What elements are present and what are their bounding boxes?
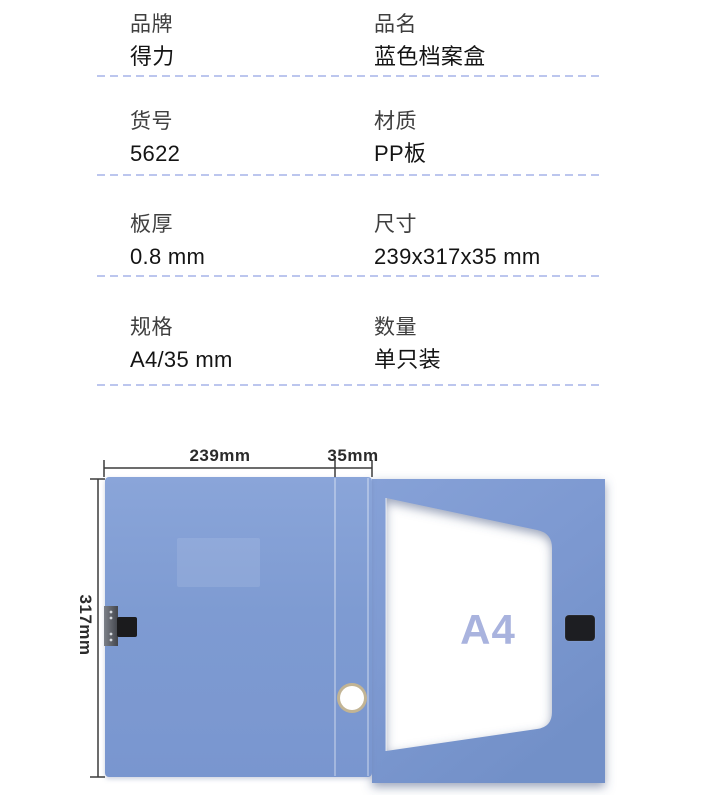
product-dimension-diagram: A4 239mm 35mm 317mm [0,430,726,795]
product-name-label: 品名 [374,12,486,38]
clip-screw [110,633,113,636]
product-name-value: 蓝色档案盒 [374,43,486,71]
spec-cell-spec: 规格 A4/35 mm [130,315,233,374]
material-value: PP板 [374,140,426,168]
item-no-label: 货号 [130,109,180,135]
finger-hole [340,686,364,710]
thickness-value: 0.8 mm [130,243,205,271]
quantity-value: 单只装 [374,346,441,374]
size-label: 尺寸 [374,212,541,238]
clip-fastener-left [117,617,137,637]
clip-screw [110,611,113,614]
size-value: 239x317x35 mm [374,243,541,271]
spec-cell-size: 尺寸 239x317x35 mm [374,212,541,271]
divider-dashed [97,384,603,386]
divider-dashed [97,174,603,176]
spec-cell-quantity: 数量 单只装 [374,315,441,374]
spec-cell-brand: 品牌 得力 [130,12,175,71]
box-back-panel: A4 [372,479,605,783]
dim-label-width: 239mm [189,446,250,465]
item-no-value: 5622 [130,140,180,168]
quantity-label: 数量 [374,315,441,341]
front-panel [105,477,372,777]
clip-fastener-right [565,615,595,641]
spec-cell-material: 材质 PP板 [374,109,426,168]
brand-label: 品牌 [130,12,175,38]
dim-label-height: 317mm [76,594,95,655]
spec-cell-product-name: 品名 蓝色档案盒 [374,12,486,71]
divider-dashed [97,275,603,277]
a4-paper-label: A4 [460,606,516,653]
clip-screw [110,639,113,642]
spec-label: 规格 [130,315,233,341]
thickness-label: 板厚 [130,212,205,238]
box-front-cover [104,477,372,777]
brand-value: 得力 [130,43,175,71]
dim-label-spine: 35mm [327,446,378,465]
spec-cell-thickness: 板厚 0.8 mm [130,212,205,271]
spec-cell-item-no: 货号 5622 [130,109,180,168]
spec-table: 品牌 得力 品名 蓝色档案盒 货号 5622 材质 PP板 板厚 0.8 mm … [0,0,726,430]
spec-value: A4/35 mm [130,346,233,374]
divider-dashed [97,75,603,77]
material-label: 材质 [374,109,426,135]
label-window [177,538,260,587]
clip-screw [110,617,113,620]
